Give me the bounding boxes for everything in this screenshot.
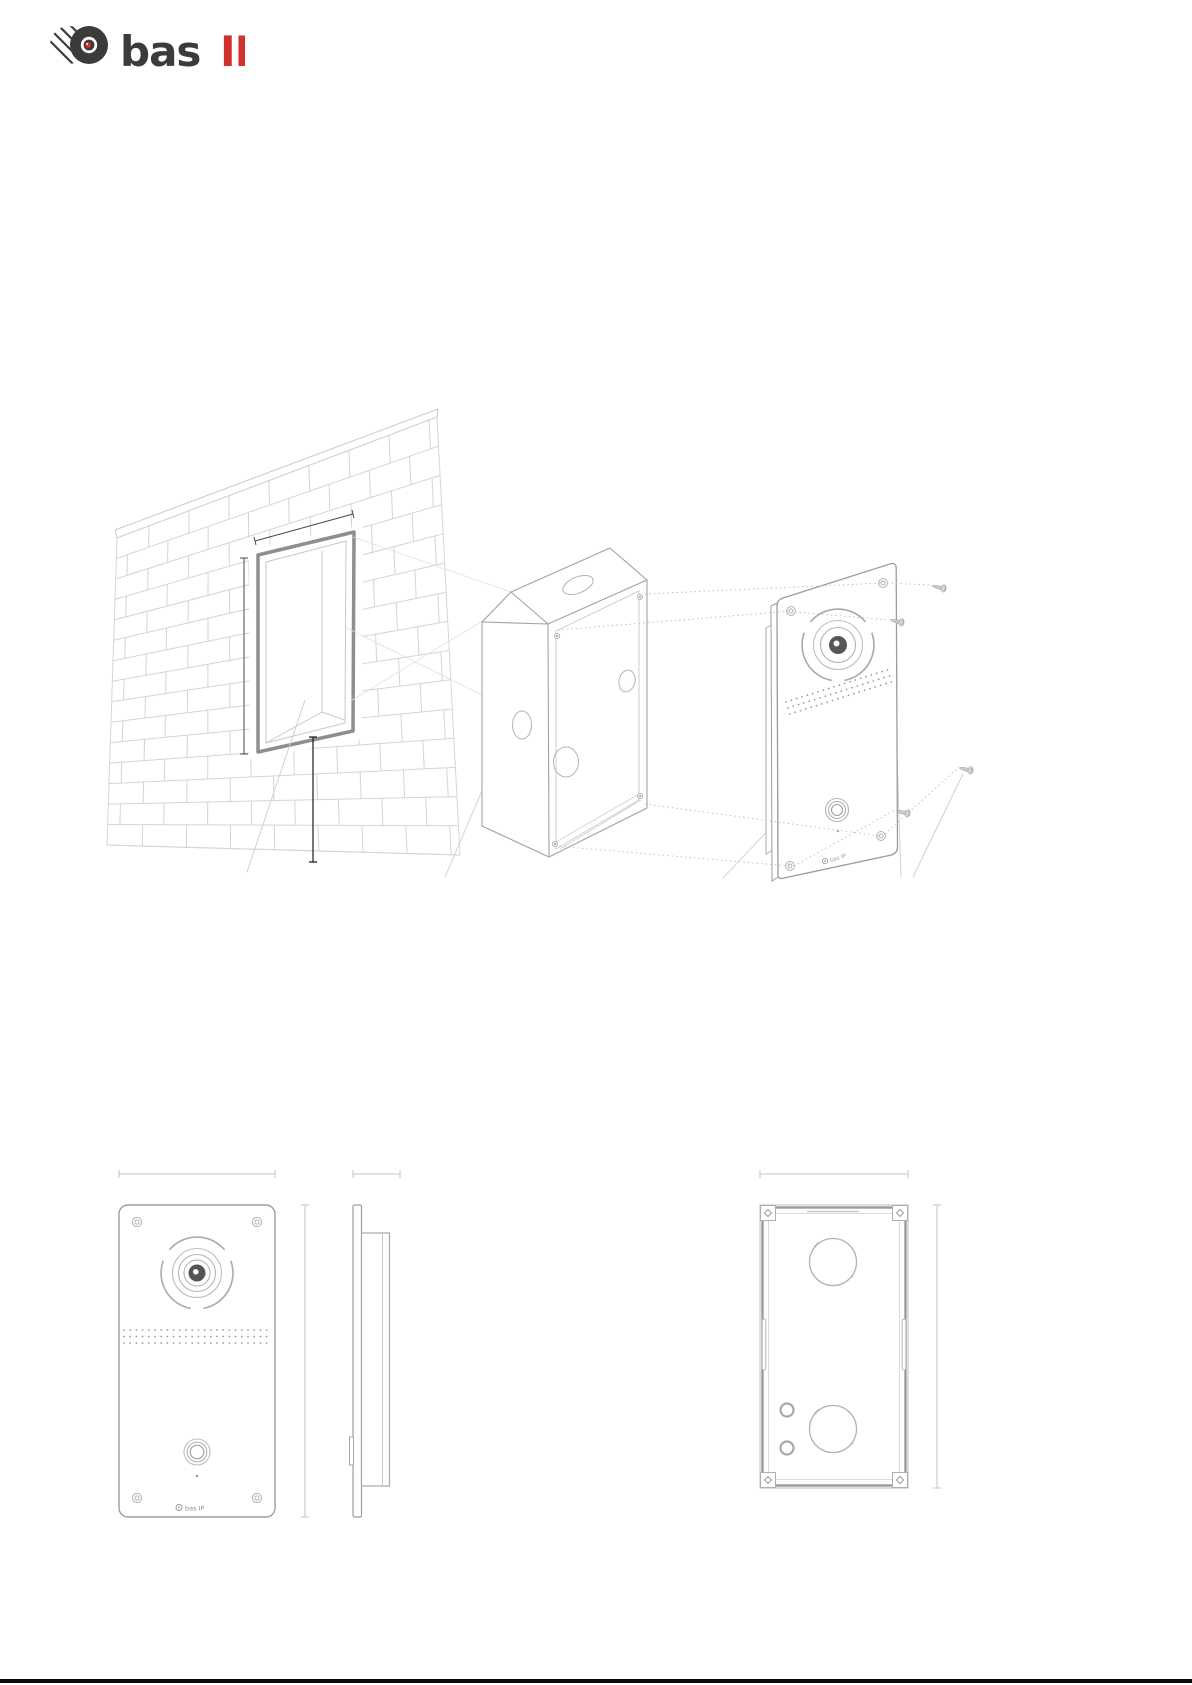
manual-page: bas IP — [0, 0, 1192, 1685]
height-dimension — [301, 1205, 309, 1517]
footer-bar — [0, 1679, 1192, 1683]
logo-red-dot — [85, 42, 91, 48]
panel-outline — [119, 1205, 275, 1517]
brand-logo-text: bas IP — [120, 27, 245, 76]
screw-icon — [896, 808, 911, 818]
dimension-views: bas IP — [90, 1090, 960, 1535]
svg-text:bas IP: bas IP — [185, 1505, 204, 1513]
side-view — [350, 1170, 401, 1517]
door-panel: bas IP — [766, 564, 898, 882]
front-plate — [353, 1205, 362, 1517]
brand-name-accent: IP — [220, 27, 245, 76]
screw-icon — [959, 765, 974, 775]
screw-icon — [932, 583, 947, 593]
width-dimension — [760, 1170, 908, 1178]
rear-box — [362, 1233, 390, 1486]
microphone-hole — [196, 1475, 198, 1477]
rear-box-view — [760, 1170, 941, 1488]
flush-mount-box — [482, 548, 647, 857]
wall-niche — [258, 532, 354, 752]
installation-diagram: bas IP — [100, 400, 1000, 900]
height-dimension — [933, 1205, 941, 1488]
mounting-screws — [890, 583, 974, 818]
depth-dimension — [353, 1170, 400, 1178]
front-view: bas IP — [119, 1170, 309, 1517]
latch — [350, 1437, 354, 1465]
speaker-disc-icon — [45, 18, 108, 76]
brand-logo: bas IP — [45, 18, 245, 76]
brick-wall — [107, 409, 460, 862]
brand-name-primary: bas — [120, 27, 200, 76]
width-dimension — [119, 1170, 275, 1178]
box-outline — [760, 1205, 908, 1488]
